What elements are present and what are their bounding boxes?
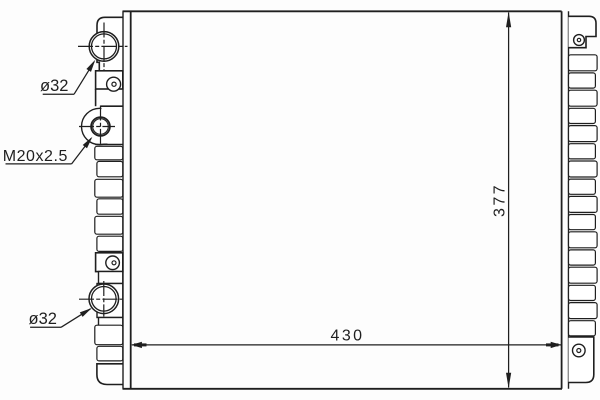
svg-text:377: 377 xyxy=(492,183,509,217)
svg-text:ø32: ø32 xyxy=(29,310,57,328)
svg-text:430: 430 xyxy=(331,328,365,345)
svg-text:M20x2.5: M20x2.5 xyxy=(3,148,68,165)
svg-text:ø32: ø32 xyxy=(40,77,68,95)
